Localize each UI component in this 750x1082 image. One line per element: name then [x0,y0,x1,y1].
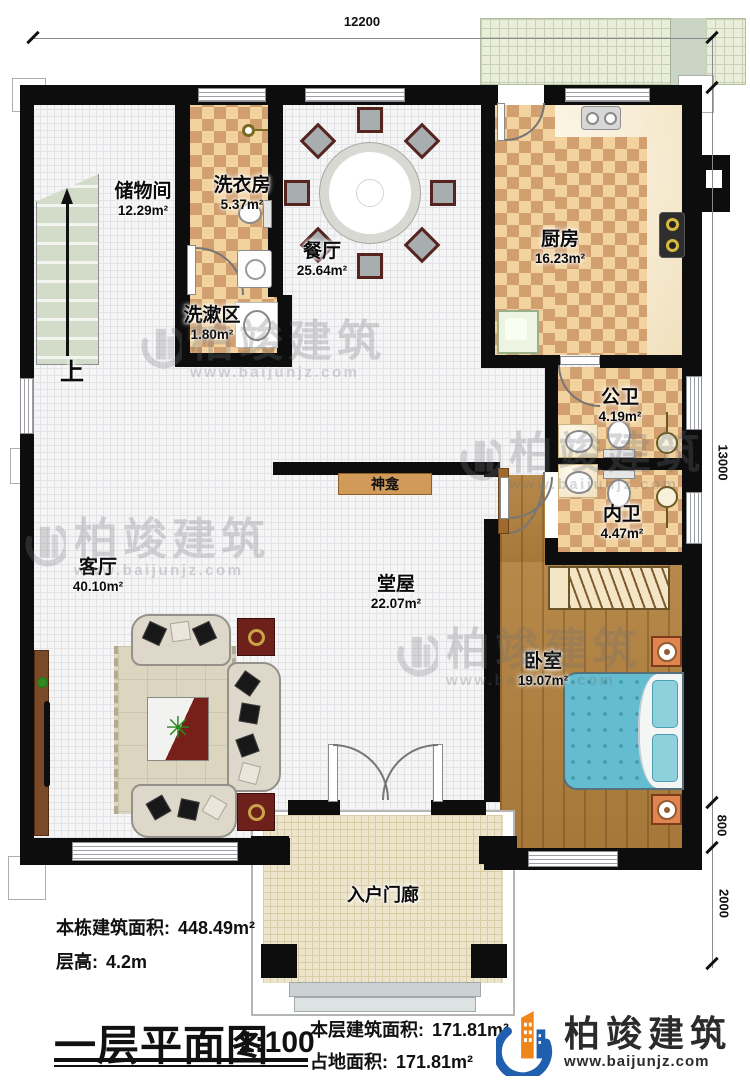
pillow [652,680,678,728]
stairs-arrow-icon [61,188,73,204]
room-label-inner-bath: 内卫4.47m² [590,505,654,541]
room-label-living: 客厅40.10m² [60,558,136,594]
window [305,88,405,102]
shower-stem [666,412,668,432]
brand-logo: 柏竣建筑 www.baijunjz.com [496,1008,732,1076]
dining-chair [284,180,310,206]
tv [44,701,50,787]
room-label-public-bath: 公卫4.19m² [588,388,652,424]
dimension-line [712,38,713,968]
room-label-hall: 堂屋22.07m² [358,575,434,611]
wall-segment [545,355,558,472]
brand-logo-icon [496,1008,554,1076]
porch-pillar [479,836,517,864]
side-table [237,618,275,656]
room-label-laundry: 洗衣房5.37m² [202,176,282,212]
side-table [237,793,275,831]
dining-chair [430,180,456,206]
faucet-icon [242,124,255,137]
room-label-bedroom: 卧室19.07m² [505,652,581,688]
wall-segment [20,85,34,865]
shower-head-icon [656,486,678,508]
wall-segment [600,355,702,368]
porch-step [289,982,481,997]
porch-pillar [251,836,289,864]
door-leaf [187,245,196,295]
sofa [227,662,281,792]
toilet [603,470,635,508]
room-label-kitchen: 厨房16.23m² [522,230,598,266]
floor-area-line: 本层建筑面积:171.81m² [310,1016,509,1042]
plant-icon [37,677,48,688]
room-label-washing: 洗漱区1.80m² [176,306,248,342]
door-leaf [497,103,505,141]
wall-segment [288,800,340,815]
sofa [131,784,237,838]
window [686,492,702,544]
dimension-label-right: 13000 [716,433,731,493]
shrine-cabinet: 神龛 [338,473,432,495]
window [72,842,238,861]
pillow [652,734,678,782]
wall-segment [277,295,292,353]
wall-segment [545,552,702,565]
stove [659,212,685,258]
bath-sink-counter [558,424,598,458]
shower-head-icon [656,432,678,454]
drawing-scale: 1:100 [238,1026,315,1060]
dining-chair [357,107,383,133]
dining-table-center [356,179,384,207]
dining-table [320,143,420,243]
floor-height-line: 层高:4.2m [56,948,147,974]
stairs-up-label: 上 [52,360,92,386]
wardrobe [548,566,670,610]
shower-stem [666,508,668,528]
stairs-direction-line [66,204,69,356]
toilet [603,420,635,458]
wall-segment [484,519,500,802]
faucet-stem [255,129,268,131]
porch-pillar [261,944,297,978]
porch-pillar [471,944,507,978]
door-leaf [500,477,509,519]
dimension-label-top: 12200 [332,14,392,29]
room-label-storage: 储物间12.29m² [98,182,188,218]
window [528,851,618,867]
nightstand [651,636,682,667]
wall-flue-notch [706,170,722,188]
bed [563,672,684,790]
window [198,88,266,102]
door-leaf [560,356,600,365]
bath-sink-counter [558,464,598,498]
sofa [131,614,231,666]
wall-segment [175,353,292,367]
tv-cabinet [34,650,49,836]
wall-segment [481,85,495,355]
dimension-label-right: 2000 [717,874,732,934]
window [565,88,650,102]
wall-segment [431,800,486,815]
footprint-line: 占地面积:171.81m² [310,1048,473,1074]
dimension-label-right: 800 [715,796,730,856]
porch-step [294,997,476,1012]
nightstand [651,794,682,825]
washing-machine [237,250,272,288]
dimension-line [33,38,712,39]
window [20,378,34,434]
refrigerator [497,310,539,354]
dining-chair [357,253,383,279]
door-opening [498,85,544,105]
room-label-dining: 餐厅25.64m² [284,242,360,278]
kitchen-sink [581,106,621,130]
plant-icon: ✳ [165,712,190,745]
room-label-porch: 入户门廊 [333,886,433,906]
floor-plan: 上 [0,0,750,1082]
total-area-line: 本栋建筑面积:448.49m² [56,914,255,940]
coffee-table: ✳ [147,697,209,761]
window [686,376,702,430]
